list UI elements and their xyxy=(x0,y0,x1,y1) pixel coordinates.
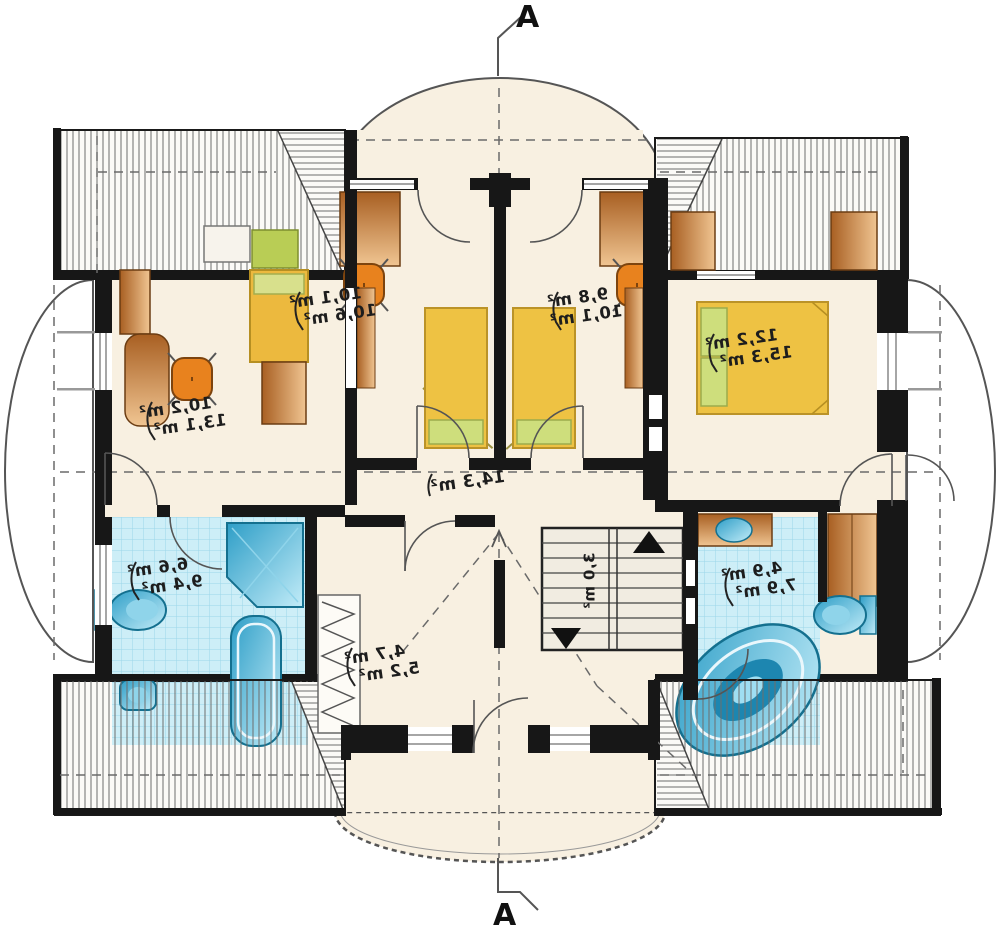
bed xyxy=(425,308,487,448)
cabinet xyxy=(831,212,877,270)
stairs-area-label: 3,0 m² xyxy=(581,553,599,609)
table xyxy=(204,226,250,262)
vanity-sink xyxy=(698,514,772,546)
closet-cabinet xyxy=(828,514,877,606)
wardrobe xyxy=(625,288,643,388)
wardrobe xyxy=(262,362,306,424)
section-letter-bottom: A xyxy=(493,898,516,933)
cabinet xyxy=(120,270,150,334)
section-letter-top: A xyxy=(516,0,539,35)
shelf xyxy=(252,230,298,268)
cabinet xyxy=(671,212,715,270)
bed xyxy=(513,308,575,448)
staircase xyxy=(542,528,683,650)
floor-plan: 10,2 m² 13,1 m² 10,1 m² 10,6 m² 9,8 m² 1… xyxy=(0,0,1000,935)
